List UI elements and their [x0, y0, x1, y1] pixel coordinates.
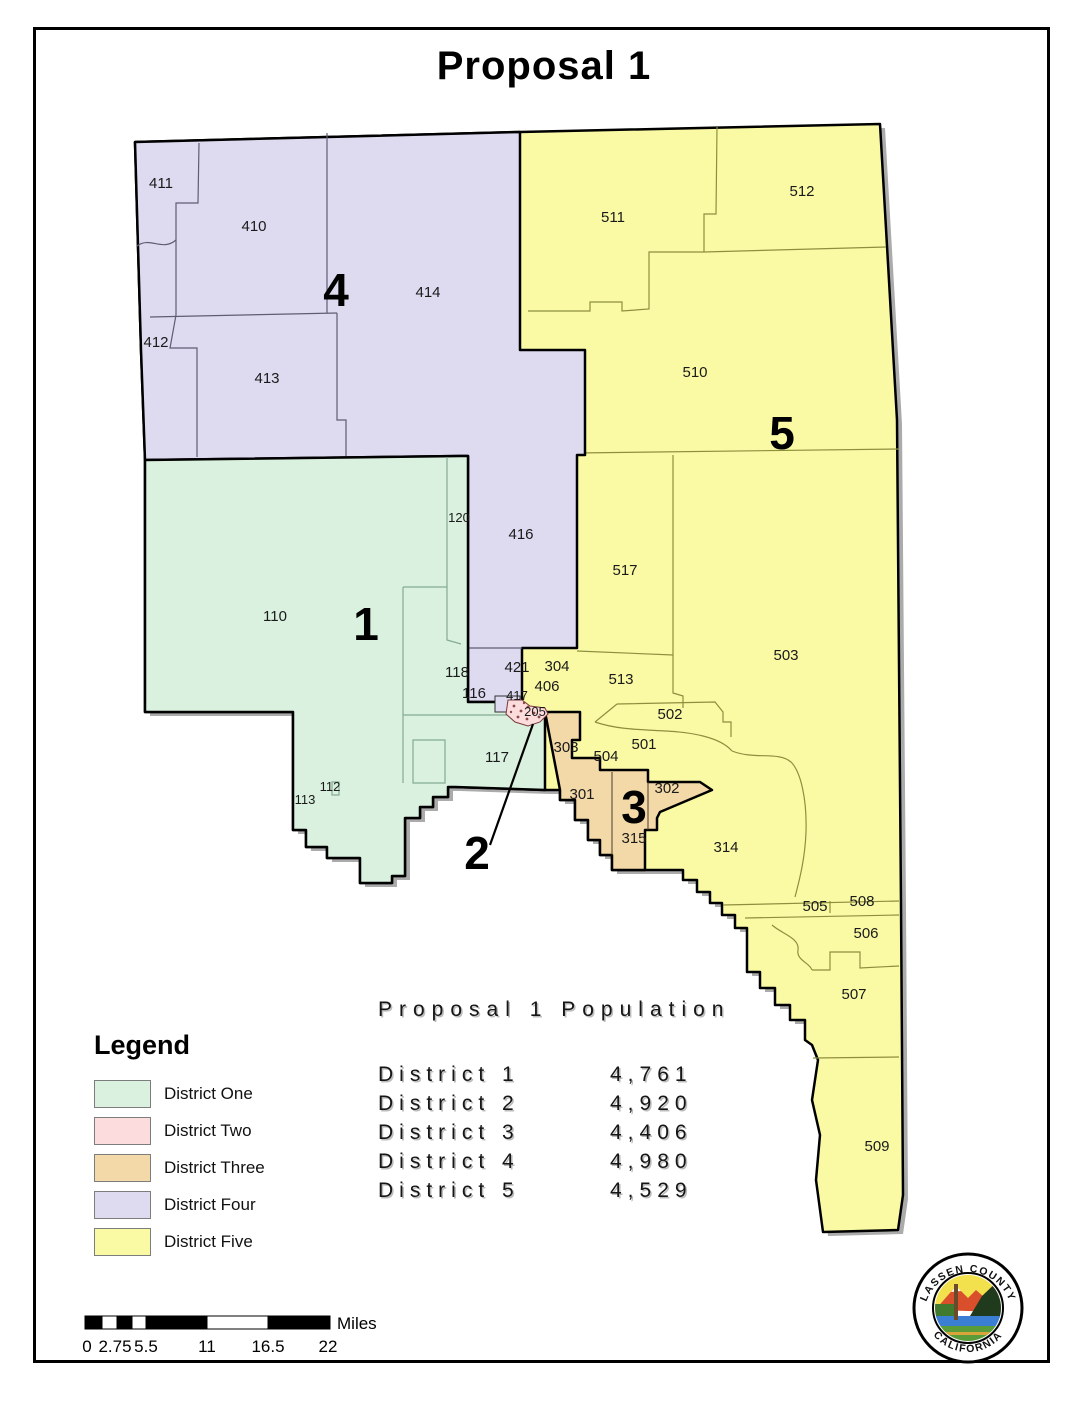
population-district-label: District 1: [378, 1060, 610, 1089]
population-table: Proposal 1 Population District 14,761Dis…: [378, 998, 730, 1205]
precinct-label-414: 414: [415, 284, 440, 301]
scale-bar: 02.755.51116.522 Miles: [82, 1314, 376, 1356]
precinct-label-301: 301: [569, 786, 594, 803]
scale-tick-label: 0: [82, 1337, 91, 1356]
precinct-label-416: 416: [508, 526, 533, 543]
county-seal: LASSEN COUNTY CALIFORNIA: [914, 1254, 1022, 1362]
legend-item: District Three: [94, 1149, 265, 1186]
population-district-label: District 5: [378, 1176, 610, 1205]
precinct-label-503: 503: [773, 647, 798, 664]
precinct-label-511: 511: [601, 209, 625, 226]
district-number-2: 2: [464, 827, 490, 879]
precinct-label-117: 117: [485, 749, 509, 766]
scale-unit-label: Miles: [337, 1314, 377, 1333]
precinct-label-411: 411: [149, 175, 173, 192]
population-district-label: District 3: [378, 1118, 610, 1147]
district-number-4: 4: [323, 264, 349, 316]
precinct-label-314: 314: [713, 839, 738, 856]
population-row: District 44,980: [378, 1147, 730, 1176]
precinct-label-413: 413: [254, 370, 279, 387]
population-district-label: District 2: [378, 1089, 610, 1118]
precinct-label-513: 513: [608, 671, 633, 688]
population-value: 4,761: [610, 1060, 693, 1089]
legend-item: District Two: [94, 1112, 265, 1149]
legend-label: District Four: [164, 1195, 256, 1215]
precinct-label-118: 118: [445, 664, 469, 681]
precinct-label-505: 505: [802, 898, 827, 915]
legend-swatch: [94, 1080, 151, 1108]
legend-label: District Two: [164, 1121, 252, 1141]
precinct-label-509: 509: [864, 1138, 889, 1155]
precinct-label-302: 302: [654, 780, 679, 797]
scale-tick-label: 5.5: [134, 1337, 158, 1356]
legend-item: District Five: [94, 1223, 265, 1260]
precinct-label-110: 110: [263, 608, 287, 625]
population-title: Proposal 1 Population: [378, 998, 730, 1022]
legend-label: District One: [164, 1084, 253, 1104]
population-value: 4,980: [610, 1147, 693, 1176]
precinct-label-113: 113: [295, 792, 316, 807]
precinct-label-508: 508: [849, 893, 874, 910]
district-number-5: 5: [769, 407, 795, 459]
precinct-label-303: 303: [553, 739, 578, 756]
legend-label: District Five: [164, 1232, 253, 1252]
precinct-label-517: 517: [612, 562, 637, 579]
district-number-3: 3: [621, 781, 647, 833]
scale-tick-label: 22: [319, 1337, 338, 1356]
precinct-label-502: 502: [657, 706, 682, 723]
legend-swatch: [94, 1191, 151, 1219]
legend-item: District Four: [94, 1186, 265, 1223]
scale-tick-label: 2.75: [98, 1337, 131, 1356]
scale-tick-label: 16.5: [251, 1337, 284, 1356]
population-value: 4,529: [610, 1176, 693, 1205]
population-value: 4,406: [610, 1118, 693, 1147]
population-row: District 34,406: [378, 1118, 730, 1147]
precinct-label-304: 304: [544, 658, 569, 675]
legend: Legend District OneDistrict TwoDistrict …: [94, 1030, 265, 1260]
population-row: District 24,920: [378, 1089, 730, 1118]
population-value: 4,920: [610, 1089, 693, 1118]
legend-swatch: [94, 1117, 151, 1145]
legend-item: District One: [94, 1075, 265, 1112]
precinct-label-507: 507: [841, 986, 866, 1003]
legend-label: District Three: [164, 1158, 265, 1178]
legend-swatch: [94, 1228, 151, 1256]
precinct-label-421: 421: [504, 659, 529, 676]
precinct-label-501: 501: [631, 736, 656, 753]
precinct-label-406: 406: [534, 678, 559, 695]
population-district-label: District 4: [378, 1147, 610, 1176]
precinct-label-504: 504: [593, 748, 618, 765]
legend-swatch: [94, 1154, 151, 1182]
precinct-label-205: 205: [524, 704, 546, 719]
precinct-label-112: 112: [320, 779, 341, 794]
seal-landscape: [935, 1275, 1001, 1341]
precinct-label-506: 506: [853, 925, 878, 942]
legend-heading: Legend: [94, 1030, 265, 1061]
precinct-label-510: 510: [682, 364, 707, 381]
precinct-label-512: 512: [789, 183, 814, 200]
precinct-label-116: 116: [462, 685, 486, 702]
precinct-label-412: 412: [143, 334, 168, 351]
precinct-label-417: 417: [506, 688, 528, 703]
district-number-1: 1: [353, 598, 379, 650]
population-row: District 14,761: [378, 1060, 730, 1089]
precinct-label-120: 120: [448, 510, 470, 525]
precinct-label-410: 410: [241, 218, 266, 235]
population-row: District 54,529: [378, 1176, 730, 1205]
scale-tick-label: 11: [198, 1337, 216, 1356]
